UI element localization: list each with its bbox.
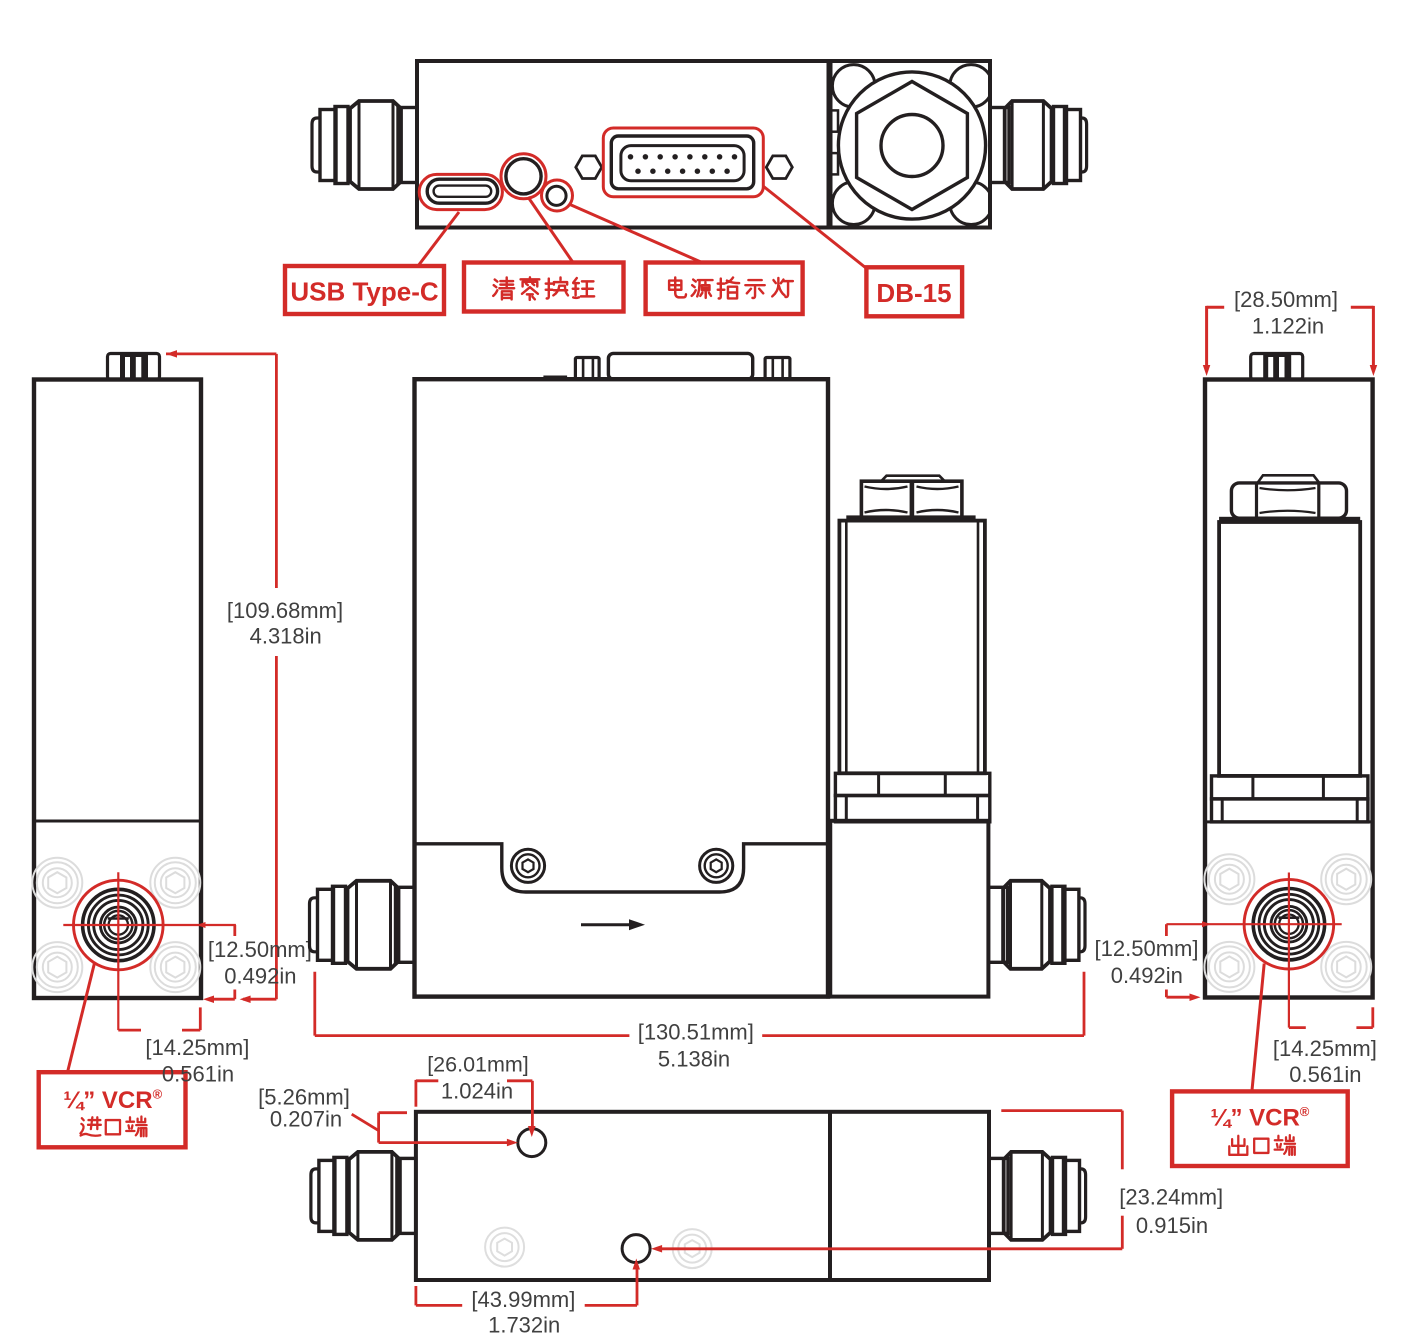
svg-text:¼” VCR®: ¼” VCR® [1210,1103,1309,1131]
svg-text:[14.25mm]: [14.25mm] [1273,1036,1377,1061]
svg-text:[26.01mm]: [26.01mm] [427,1052,529,1076]
svg-text:1.122in: 1.122in [1252,314,1324,339]
svg-text:USB Type-C: USB Type-C [290,277,439,307]
svg-text:[5.26mm]: [5.26mm] [258,1084,350,1109]
svg-text:[130.51mm]: [130.51mm] [638,1019,754,1044]
svg-text:1.732in: 1.732in [488,1312,560,1336]
svg-text:0.492in: 0.492in [1111,963,1183,988]
svg-text:[28.50mm]: [28.50mm] [1234,287,1338,312]
svg-text:0.207in: 0.207in [270,1107,342,1132]
svg-text:0.492in: 0.492in [224,964,296,989]
svg-text:0.915in: 0.915in [1136,1213,1208,1238]
svg-text:[14.25mm]: [14.25mm] [145,1035,249,1060]
svg-text:[23.24mm]: [23.24mm] [1119,1185,1223,1210]
svg-text:0.561in: 0.561in [1289,1062,1361,1087]
svg-text:[109.68mm]: [109.68mm] [227,598,343,623]
svg-text:4.318in: 4.318in [250,624,322,649]
svg-text:¼” VCR®: ¼” VCR® [63,1086,162,1114]
svg-text:0.561in: 0.561in [162,1061,234,1086]
svg-text:[12.50mm]: [12.50mm] [1095,936,1199,961]
svg-text:1.024in: 1.024in [441,1079,513,1104]
svg-text:DB-15: DB-15 [876,278,951,308]
svg-text:[12.50mm]: [12.50mm] [208,937,312,962]
svg-text:5.138in: 5.138in [658,1046,730,1071]
svg-text:[43.99mm]: [43.99mm] [471,1287,575,1312]
